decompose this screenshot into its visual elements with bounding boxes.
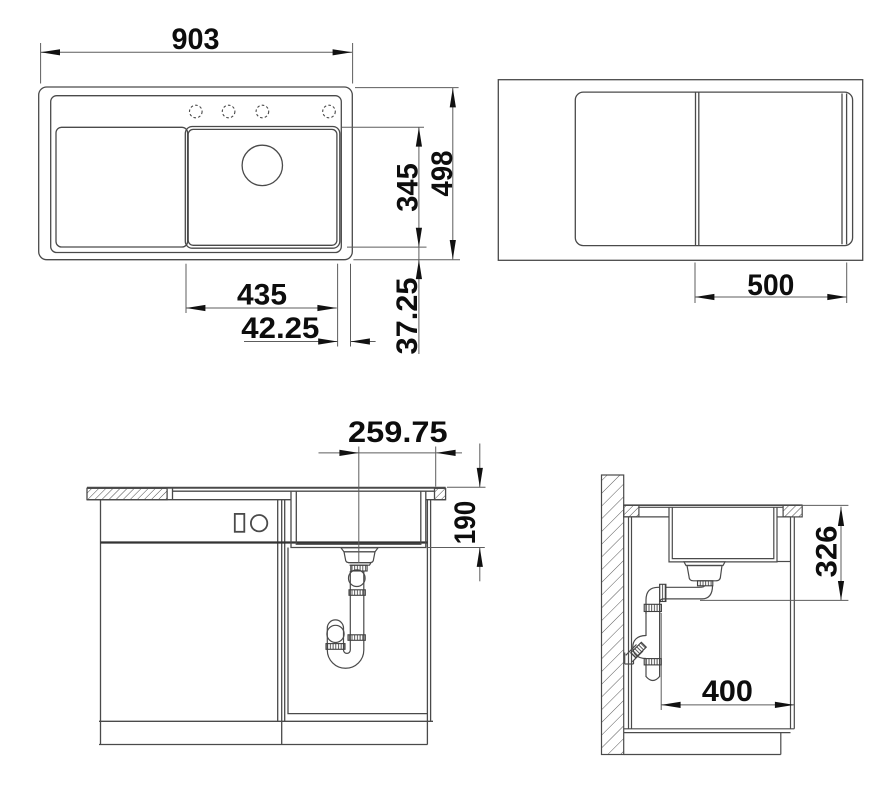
svg-text:42.25: 42.25 (241, 312, 319, 345)
svg-text:326: 326 (811, 526, 844, 578)
svg-text:500: 500 (747, 269, 794, 302)
svg-text:190: 190 (449, 501, 482, 545)
svg-text:400: 400 (702, 675, 753, 708)
svg-text:259.75: 259.75 (348, 416, 448, 449)
svg-text:435: 435 (237, 279, 287, 312)
svg-text:345: 345 (392, 163, 425, 212)
svg-text:903: 903 (172, 23, 220, 56)
svg-text:498: 498 (426, 151, 459, 197)
svg-text:37.25: 37.25 (391, 278, 424, 355)
